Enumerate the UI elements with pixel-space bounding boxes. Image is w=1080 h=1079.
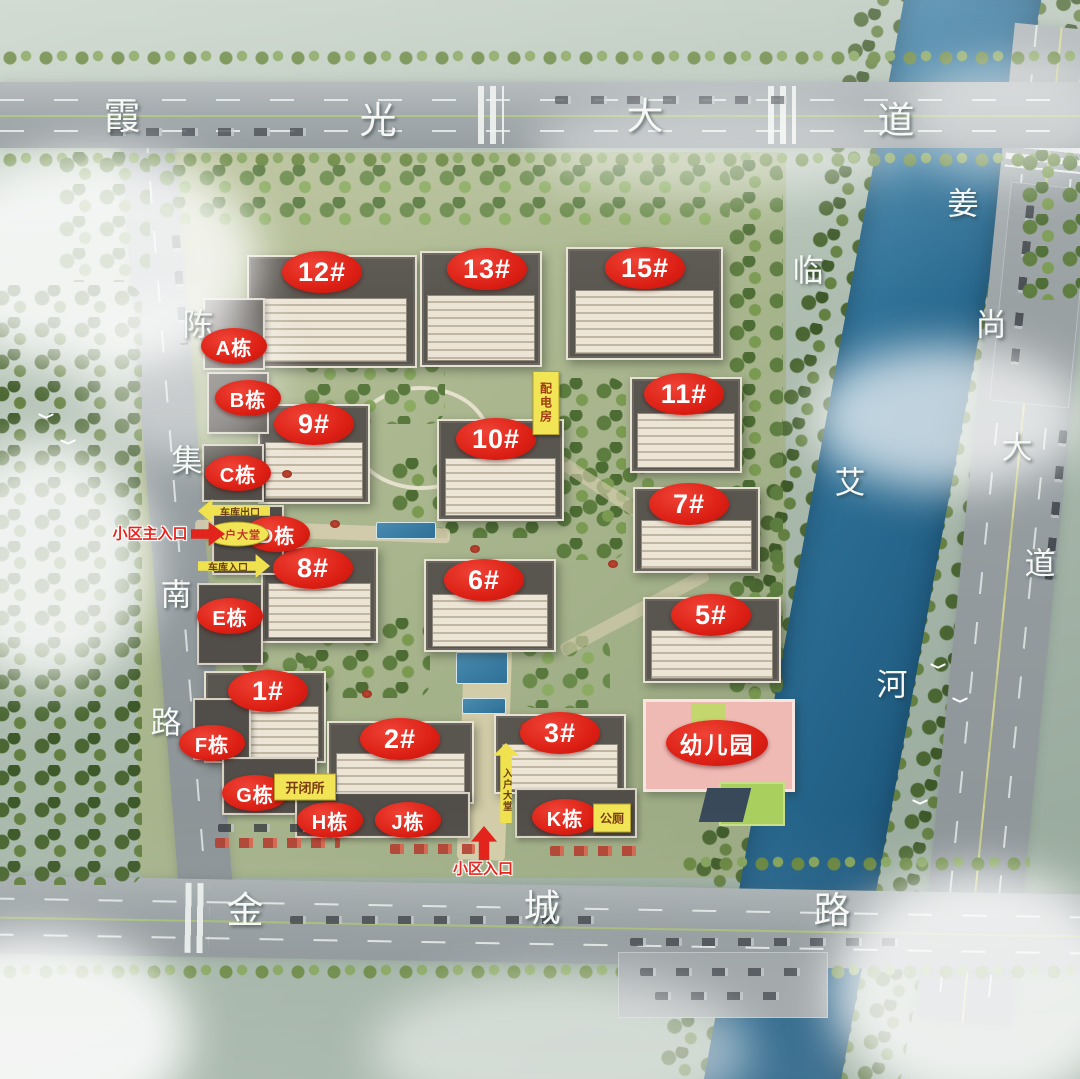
- power-room-sign: 配电房: [533, 371, 560, 435]
- facade: [257, 298, 407, 362]
- crosswalk: [478, 86, 504, 144]
- parking-lot-south: [618, 952, 828, 1018]
- road-label-jincheng-char-0: 金: [227, 880, 264, 934]
- crosswalk: [184, 883, 209, 953]
- road-label-xiaguang-char-2: 大: [627, 86, 664, 140]
- road-label-jiangshang-char-2: 大: [1002, 423, 1033, 468]
- road-label-xiaguang-char-3: 道: [878, 90, 915, 144]
- bird-icon: [930, 662, 946, 669]
- building-label-15: 15#: [605, 247, 685, 289]
- masterplan-rendering: 霞 光 大 道 姜 尚 大 道 陈 集 南 路 金 城 路 临 艾 河 12# …: [0, 0, 1080, 1079]
- west-forest: [0, 285, 142, 885]
- building-label-1: 1#: [228, 670, 308, 712]
- river-label-char-2: 河: [877, 660, 908, 705]
- tree-row: [680, 850, 1030, 876]
- facade: [651, 630, 772, 679]
- building-label-7: 7#: [649, 483, 729, 525]
- facade: [268, 583, 371, 638]
- lane-marking: [0, 933, 1080, 954]
- block-label-e: E栋: [197, 598, 263, 634]
- kindergarten-label: 幼儿园: [666, 720, 768, 766]
- building-label-9: 9#: [274, 403, 354, 445]
- building-label-8: 8#: [273, 547, 353, 589]
- road-label-xiaguang-char-0: 霞: [104, 86, 141, 140]
- block-label-k: K栋: [532, 799, 598, 835]
- facade: [427, 295, 534, 361]
- building-label-13: 13#: [447, 248, 527, 290]
- shopfront-canopies: [390, 844, 475, 854]
- moving-cars: [555, 96, 805, 104]
- red-shrub: [282, 470, 292, 478]
- kindergarten-annex: [699, 788, 751, 822]
- building-label-3: 3#: [520, 712, 600, 754]
- block-label-c: C栋: [205, 455, 271, 491]
- tree-row: [0, 958, 1080, 992]
- facade: [637, 413, 736, 468]
- river-label-char-0: 临: [793, 246, 824, 291]
- bird-icon: [952, 696, 968, 703]
- building-label-11: 11#: [644, 373, 724, 415]
- shopfront-canopies: [215, 838, 340, 848]
- north-buffer-trees: [155, 165, 730, 227]
- block-label-h: H栋: [297, 802, 363, 838]
- road-label-xiaguang-char-1: 光: [360, 90, 397, 144]
- lane-marking: [0, 99, 1080, 101]
- road-label-chenji-char-3: 路: [151, 698, 182, 743]
- building-label-5: 5#: [671, 594, 751, 636]
- landscape-pool: [376, 522, 436, 539]
- block-label-f: F栋: [179, 725, 245, 761]
- public-toilet-sign: 公厕: [593, 804, 631, 833]
- building-label-6: 6#: [444, 559, 524, 601]
- road-label-jiangshang-char-0: 姜: [948, 179, 979, 224]
- main-entrance-label: 小区主入口: [112, 523, 187, 544]
- building-label-2: 2#: [360, 718, 440, 760]
- building-label-12: 12#: [282, 251, 362, 293]
- road-label-jiangshang-char-3: 道: [1025, 539, 1056, 584]
- road-xiaguang: [0, 82, 1080, 148]
- bird-icon: [60, 438, 76, 445]
- east-grove: [1018, 150, 1080, 300]
- west-grove: [55, 152, 150, 282]
- parked-cars: [655, 992, 795, 1000]
- bird-icon: [38, 412, 54, 419]
- crosswalk: [768, 86, 796, 144]
- road-label-jiangshang-char-1: 尚: [976, 300, 1007, 345]
- moving-cars: [110, 128, 320, 136]
- road-label-chenji-char-2: 南: [161, 570, 192, 615]
- red-shrub: [470, 545, 480, 553]
- lane-marking: [0, 115, 1080, 117]
- tree-row-north: [0, 44, 1080, 74]
- shopfront-canopies: [550, 846, 645, 856]
- south-entrance-label: 小区入口: [453, 858, 513, 879]
- switch-station-sign: 开闭所: [274, 774, 336, 801]
- fountain: [462, 698, 506, 714]
- block-label-a: A栋: [201, 328, 267, 364]
- river-label-char-1: 艾: [835, 458, 866, 503]
- red-shrub: [608, 560, 618, 568]
- road-label-chenji-char-1: 集: [172, 436, 203, 481]
- road-label-jincheng-char-2: 路: [814, 880, 851, 934]
- block-label-j: J栋: [375, 802, 441, 838]
- facade: [265, 442, 364, 499]
- red-shrub: [330, 520, 340, 528]
- bird-icon: [912, 798, 928, 805]
- facade: [575, 290, 713, 354]
- facade: [445, 458, 557, 516]
- red-shrub: [362, 690, 372, 698]
- parked-cars: [640, 968, 810, 976]
- central-pool: [456, 652, 508, 684]
- road-label-jincheng-char-1: 城: [524, 878, 561, 932]
- block-label-b: B栋: [215, 380, 281, 416]
- facade: [641, 520, 753, 569]
- facade: [432, 594, 548, 647]
- moving-cars: [630, 938, 910, 946]
- building-label-10: 10#: [456, 418, 536, 460]
